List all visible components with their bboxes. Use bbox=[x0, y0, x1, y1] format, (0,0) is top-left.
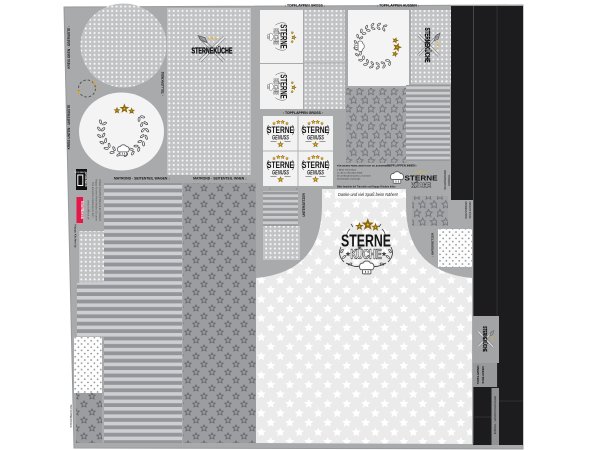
svg-text:↓ UNTERSETZER: ↓ UNTERSETZER bbox=[431, 232, 435, 257]
svg-text:1 Meter Thermolam: 1 Meter Thermolam bbox=[337, 168, 356, 171]
svg-text:ca. 30 cm Vlieseline S320: ca. 30 cm Vlieseline S320 bbox=[337, 172, 363, 174]
svg-text:STOFFBECK: STOFFBECK bbox=[84, 172, 87, 187]
svg-text:STERNEKÜCHE: STERNEKÜCHE bbox=[481, 326, 488, 352]
svg-text:SCHLAUFEN: SCHLAUFEN bbox=[481, 366, 485, 383]
svg-text:TOPFLAPPEN: TOPFLAPPEN bbox=[476, 366, 480, 385]
svg-text:MATROND · SEITENTEIL WAGEN ↓: MATROND · SEITENTEIL WAGEN ↓ bbox=[114, 177, 170, 181]
svg-text:FÜR DIESES PANEL BENÖTIGST DU: FÜR DIESES PANEL BENÖTIGST DU AUSSERDEM: bbox=[337, 165, 391, 168]
svg-text:STERNEKÜCHE: STERNEKÜCHE bbox=[423, 28, 432, 63]
svg-text:www.stoffbeck.de: www.stoffbeck.de bbox=[87, 200, 90, 220]
svg-text:KORDEL · HANDTUCHHÄNGER: KORDEL · HANDTUCHHÄNGER bbox=[493, 396, 497, 435]
svg-text:SCHLAUFEN: SCHLAUFEN bbox=[468, 202, 472, 219]
svg-text:↓ TOPFLAPPEN AUSSEN ↓: ↓ TOPFLAPPEN AUSSEN ↓ bbox=[377, 4, 420, 8]
svg-text:STOFFBECK: STOFFBECK bbox=[75, 172, 88, 174]
svg-text:KÜCHE: KÜCHE bbox=[411, 182, 431, 190]
svg-text:↑ TELLERKREIS: ↑ TELLERKREIS bbox=[161, 72, 165, 97]
svg-text:↓ TOPFLAPPEN GROSS ↓: ↓ TOPFLAPPEN GROSS ↓ bbox=[284, 4, 326, 8]
svg-text:Die komplette Anleitung zu dem: Die komplette Anleitung zu dem bbox=[91, 182, 94, 217]
svg-text:Bitte beachte die Tutorials un: Bitte beachte die Tutorials und Happy Ki… bbox=[337, 185, 396, 188]
svg-text:GENUSS: GENUSS bbox=[272, 136, 289, 142]
svg-text:KORDEL: KORDEL bbox=[447, 174, 451, 186]
svg-text:MATROND · SEITENTEIL INNEN ↓: MATROND · SEITENTEIL INNEN ↓ bbox=[193, 177, 247, 181]
svg-text:STERNE: STERNE bbox=[267, 125, 294, 135]
svg-text:STERNE: STERNE bbox=[279, 74, 289, 98]
svg-text:↑ TOPFLAPPEN INNEN ↑: ↑ TOPFLAPPEN INNEN ↑ bbox=[385, 164, 418, 168]
svg-text:25 cm Bündchenstoff ca. 5cm br: 25 cm Bündchenstoff ca. 5cm breit bbox=[337, 174, 371, 177]
svg-text:↑ TOPFLAPPEN GROSS ↑: ↑ TOPFLAPPEN GROSS ↑ bbox=[282, 111, 324, 115]
svg-text:STERNE: STERNE bbox=[279, 24, 289, 48]
svg-text:Stoffbeck: Stoffbeck bbox=[80, 201, 85, 220]
svg-text:KREIS OBEN · OBERSEITE ↑: KREIS OBEN · OBERSEITE ↑ bbox=[67, 25, 71, 69]
svg-text:WWW.SNAPPAP.DE/ANLEITUNGEN: WWW.SNAPPAP.DE/ANLEITUNGEN bbox=[98, 179, 101, 221]
svg-text:KÜCHE: KÜCHE bbox=[351, 247, 382, 262]
svg-text:Druckknöpfe und Zange: Druckknöpfe und Zange bbox=[337, 177, 361, 180]
svg-text:STOFFBECK.DE: STOFFBECK.DE bbox=[69, 405, 73, 428]
svg-text:STERNEKÜCHE: STERNEKÜCHE bbox=[192, 45, 233, 55]
svg-text:STERNE: STERNE bbox=[405, 174, 438, 183]
svg-text:Danke und viel Spaß beim Nähen: Danke und viel Spaß beim Nähen! bbox=[338, 192, 399, 197]
svg-text:Happy Kitchen Panel findest Du: Happy Kitchen Panel findest Du unter bbox=[95, 179, 98, 221]
svg-text:KREIS UNTEN · UNTERSEITE: KREIS UNTEN · UNTERSEITE bbox=[67, 105, 71, 150]
svg-text:UNTERSETZER: UNTERSETZER bbox=[302, 193, 306, 217]
svg-text:Happy Kitchen by: Happy Kitchen by bbox=[74, 224, 78, 248]
